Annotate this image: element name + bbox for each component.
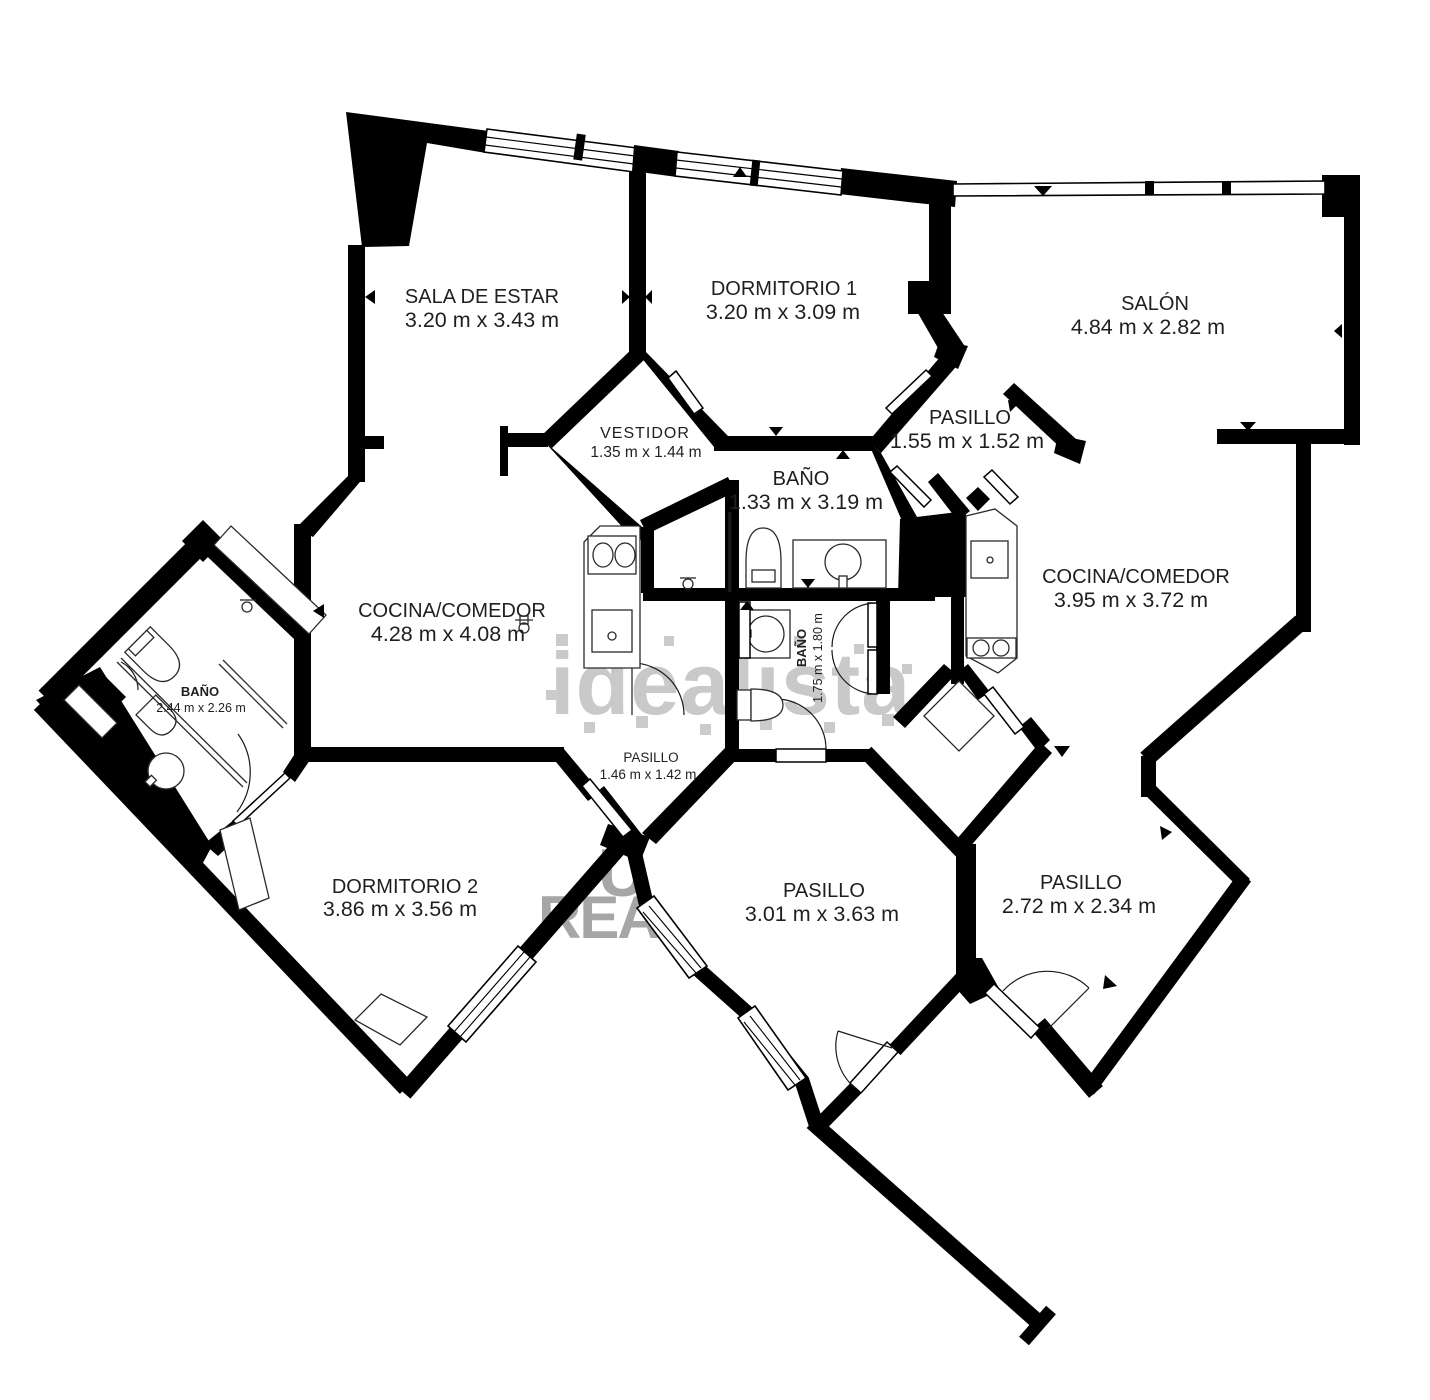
svg-text:1.35 m x 1.44 m: 1.35 m x 1.44 m [590,444,701,461]
svg-text:PASILLO: PASILLO [1040,872,1122,894]
svg-text:2.44 m x 2.26 m: 2.44 m x 2.26 m [156,701,246,715]
svg-text:BAÑO: BAÑO [773,466,830,490]
svg-text:4.84 m x 2.82 m: 4.84 m x 2.82 m [1071,315,1225,339]
svg-text:3.95 m x 3.72 m: 3.95 m x 3.72 m [1054,588,1208,612]
svg-text:1.46 m x 1.42 m: 1.46 m x 1.42 m [600,767,697,782]
svg-text:3.86 m x 3.56 m: 3.86 m x 3.56 m [323,897,477,921]
svg-text:COCINA/COMEDOR: COCINA/COMEDOR [1042,566,1230,588]
svg-text:1.55 m x 1.52 m: 1.55 m x 1.52 m [890,429,1044,453]
svg-text:1.75 m x 1.80 m: 1.75 m x 1.80 m [811,613,825,703]
svg-text:PASILLO: PASILLO [929,407,1011,429]
svg-text:1.33 m x 3.19 m: 1.33 m x 3.19 m [729,490,883,514]
svg-text:SALÓN: SALÓN [1121,292,1189,315]
svg-text:COCINA/COMEDOR: COCINA/COMEDOR [358,600,546,622]
svg-text:3.20 m x 3.43 m: 3.20 m x 3.43 m [405,308,559,332]
svg-text:DORMITORIO 2: DORMITORIO 2 [332,876,478,898]
svg-text:PASILLO: PASILLO [623,750,678,765]
svg-text:BAÑO: BAÑO [181,684,219,699]
svg-text:SALA DE ESTAR: SALA DE ESTAR [405,286,559,308]
svg-text:VESTIDOR: VESTIDOR [600,425,690,442]
svg-text:4.28 m x 4.08 m: 4.28 m x 4.08 m [371,622,525,646]
svg-text:3.01 m x 3.63 m: 3.01 m x 3.63 m [745,902,899,926]
svg-text:3.20 m x 3.09 m: 3.20 m x 3.09 m [706,300,860,324]
svg-text:BAÑO: BAÑO [794,629,809,667]
svg-text:DORMITORIO 1: DORMITORIO 1 [711,278,857,300]
svg-text:PASILLO: PASILLO [783,880,865,902]
svg-text:2.72 m x 2.34 m: 2.72 m x 2.34 m [1002,894,1156,918]
